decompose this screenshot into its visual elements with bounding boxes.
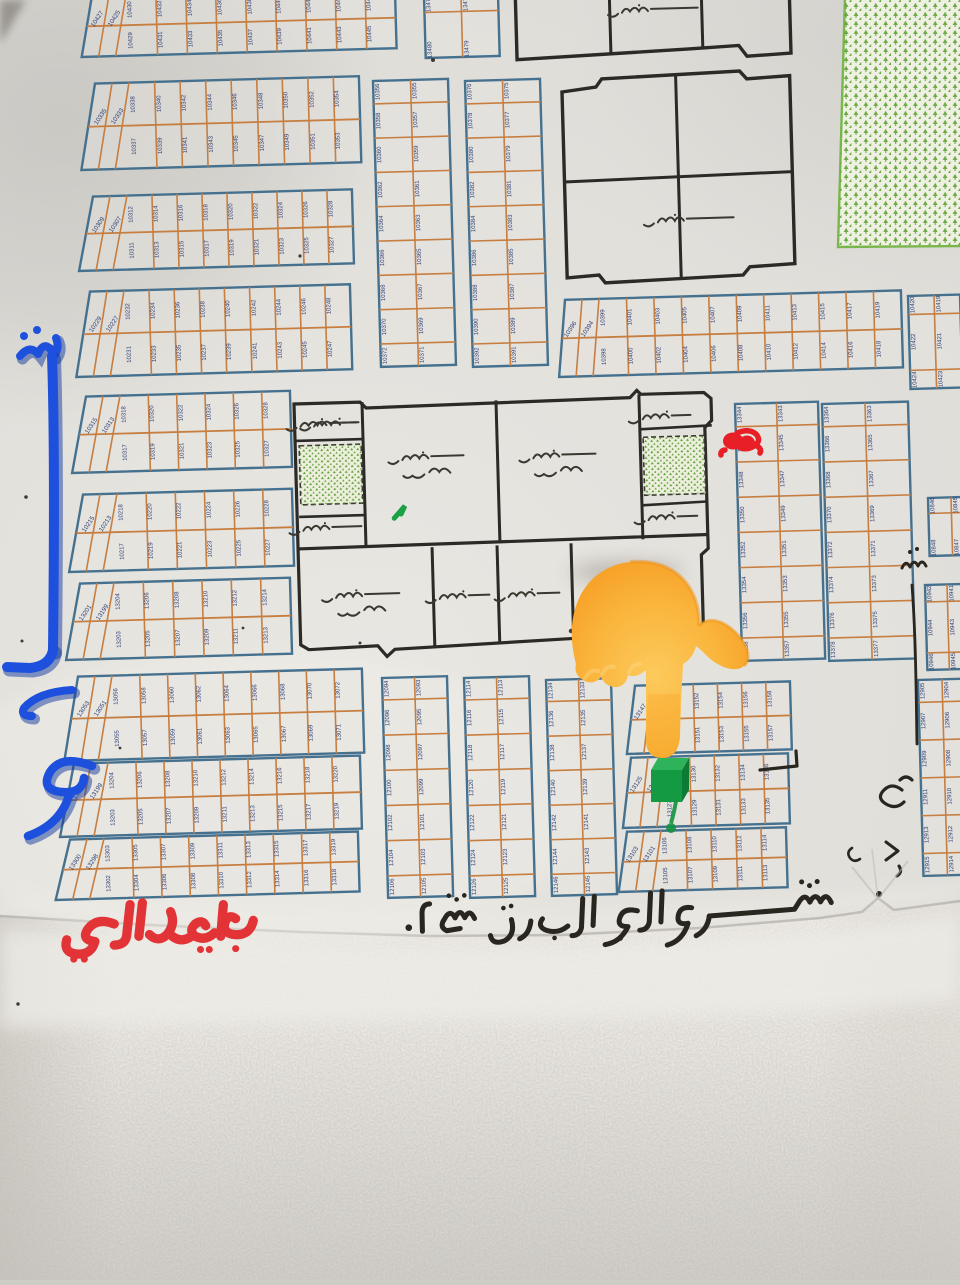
svg-text:10225: 10225 bbox=[236, 539, 242, 557]
svg-text:13208: 13208 bbox=[165, 770, 171, 788]
svg-text:12121: 12121 bbox=[502, 813, 508, 831]
svg-text:13371: 13371 bbox=[871, 540, 877, 558]
svg-text:12122: 12122 bbox=[470, 814, 476, 832]
svg-text:10344: 10344 bbox=[207, 93, 213, 111]
svg-text:10313: 10313 bbox=[154, 241, 160, 259]
svg-text:13345: 13345 bbox=[779, 434, 785, 452]
svg-text:10402: 10402 bbox=[656, 346, 662, 364]
svg-text:10422: 10422 bbox=[911, 333, 917, 351]
svg-text:12125: 12125 bbox=[504, 877, 510, 895]
svg-text:10322: 10322 bbox=[253, 202, 259, 220]
svg-text:10338: 10338 bbox=[130, 95, 136, 113]
svg-text:12097: 12097 bbox=[418, 743, 424, 761]
svg-text:10246: 10246 bbox=[301, 297, 307, 315]
svg-text:13211: 13211 bbox=[233, 627, 239, 644]
svg-text:13133: 13133 bbox=[741, 797, 747, 815]
svg-text:10360: 10360 bbox=[377, 146, 383, 164]
svg-text:10389: 10389 bbox=[511, 317, 517, 335]
svg-text:12095: 12095 bbox=[417, 708, 423, 726]
svg-text:13055: 13055 bbox=[114, 729, 120, 747]
svg-text:13368: 13368 bbox=[826, 471, 832, 489]
svg-text:10358: 10358 bbox=[376, 112, 382, 130]
svg-text:13106: 13106 bbox=[662, 837, 668, 855]
svg-text:13312: 13312 bbox=[247, 870, 253, 888]
svg-text:13206: 13206 bbox=[137, 771, 143, 789]
svg-text:10222: 10222 bbox=[176, 502, 182, 520]
svg-text:13151: 13151 bbox=[695, 726, 701, 744]
svg-text:10372: 10372 bbox=[382, 347, 388, 365]
svg-text:13204: 13204 bbox=[109, 771, 115, 789]
svg-text:13319: 13319 bbox=[331, 838, 337, 856]
svg-text:10327: 10327 bbox=[329, 236, 335, 254]
svg-text:10241: 10241 bbox=[252, 342, 258, 360]
svg-text:13479: 13479 bbox=[464, 40, 470, 58]
svg-text:12914: 12914 bbox=[949, 855, 955, 873]
svg-text:10847: 10847 bbox=[954, 538, 960, 556]
svg-text:10348: 10348 bbox=[258, 92, 264, 110]
svg-text:13057: 13057 bbox=[142, 729, 148, 747]
svg-text:13305: 13305 bbox=[133, 844, 139, 862]
svg-text:10371: 10371 bbox=[419, 346, 425, 364]
svg-text:10365: 10365 bbox=[417, 248, 423, 266]
svg-text:12913: 12913 bbox=[924, 826, 930, 844]
svg-text:12103: 12103 bbox=[421, 848, 427, 866]
svg-text:10445: 10445 bbox=[367, 25, 373, 43]
svg-text:13352: 13352 bbox=[741, 541, 747, 559]
svg-text:10411: 10411 bbox=[765, 304, 771, 321]
svg-text:10319: 10319 bbox=[150, 443, 156, 461]
svg-text:12912: 12912 bbox=[948, 825, 954, 843]
svg-text:13207: 13207 bbox=[166, 807, 172, 825]
svg-text:10375: 10375 bbox=[504, 82, 510, 100]
svg-text:13134: 13134 bbox=[740, 764, 746, 782]
svg-text:10848: 10848 bbox=[931, 539, 937, 557]
svg-text:10435: 10435 bbox=[218, 29, 224, 47]
svg-text:10944: 10944 bbox=[928, 619, 934, 637]
svg-text:13377: 13377 bbox=[874, 639, 880, 657]
svg-text:13108: 13108 bbox=[687, 836, 693, 854]
svg-text:13158: 13158 bbox=[767, 690, 773, 708]
svg-text:10237: 10237 bbox=[201, 343, 207, 361]
svg-text:12096: 12096 bbox=[385, 709, 391, 727]
svg-text:10391: 10391 bbox=[511, 346, 517, 364]
svg-text:10319: 10319 bbox=[229, 239, 235, 257]
svg-text:10231: 10231 bbox=[127, 345, 133, 363]
svg-text:13304: 13304 bbox=[134, 874, 140, 892]
svg-text:10223: 10223 bbox=[207, 540, 213, 558]
svg-text:10846: 10846 bbox=[930, 497, 936, 515]
svg-text:12123: 12123 bbox=[503, 848, 509, 866]
svg-text:13214: 13214 bbox=[262, 588, 268, 606]
svg-text:13220: 13220 bbox=[333, 765, 339, 783]
svg-text:13205: 13205 bbox=[145, 630, 151, 648]
svg-text:10418: 10418 bbox=[876, 340, 882, 358]
svg-text:10383: 10383 bbox=[508, 214, 514, 232]
svg-text:13302: 13302 bbox=[106, 874, 112, 892]
svg-text:10322: 10322 bbox=[178, 404, 184, 422]
svg-text:10412: 10412 bbox=[793, 342, 799, 360]
svg-text:10323: 10323 bbox=[207, 441, 213, 459]
svg-text:12106: 12106 bbox=[390, 878, 396, 896]
svg-text:12908: 12908 bbox=[946, 749, 952, 767]
svg-text:10219: 10219 bbox=[148, 542, 154, 560]
svg-text:13373: 13373 bbox=[872, 575, 878, 593]
svg-text:12136: 12136 bbox=[549, 710, 555, 728]
svg-text:13309: 13309 bbox=[190, 842, 196, 860]
svg-text:12141: 12141 bbox=[584, 813, 590, 831]
svg-text:13156: 13156 bbox=[743, 691, 749, 709]
svg-text:10405: 10405 bbox=[682, 306, 688, 324]
svg-text:13367: 13367 bbox=[869, 470, 875, 488]
svg-text:10384: 10384 bbox=[471, 215, 477, 233]
svg-text:10401: 10401 bbox=[627, 308, 633, 326]
svg-text:10943: 10943 bbox=[950, 618, 956, 636]
svg-text:13153: 13153 bbox=[719, 725, 725, 743]
svg-text:13355: 13355 bbox=[784, 611, 790, 629]
svg-text:13061: 13061 bbox=[197, 727, 203, 745]
svg-text:10316: 10316 bbox=[178, 204, 184, 222]
svg-text:10417: 10417 bbox=[847, 302, 853, 320]
svg-text:13348: 13348 bbox=[739, 471, 745, 489]
svg-text:13213: 13213 bbox=[250, 804, 256, 822]
svg-text:10945: 10945 bbox=[951, 652, 957, 670]
svg-text:13353: 13353 bbox=[783, 575, 789, 593]
svg-text:10218: 10218 bbox=[118, 503, 124, 521]
svg-text:13310: 13310 bbox=[219, 871, 225, 889]
svg-text:12140: 12140 bbox=[551, 779, 557, 797]
svg-text:13111: 13111 bbox=[738, 865, 744, 882]
svg-text:10413: 10413 bbox=[792, 303, 798, 321]
svg-text:13351: 13351 bbox=[782, 540, 788, 558]
svg-text:10235: 10235 bbox=[176, 344, 182, 362]
svg-text:12910: 12910 bbox=[947, 787, 953, 805]
svg-text:12101: 12101 bbox=[420, 813, 426, 831]
svg-text:10238: 10238 bbox=[200, 300, 206, 318]
svg-text:10221: 10221 bbox=[177, 541, 183, 559]
svg-text:10345: 10345 bbox=[233, 135, 239, 153]
svg-text:12907: 12907 bbox=[921, 712, 927, 730]
svg-text:10323: 10323 bbox=[279, 237, 285, 255]
svg-text:10350: 10350 bbox=[283, 91, 289, 109]
svg-text:12094: 12094 bbox=[384, 680, 390, 698]
svg-text:13105: 13105 bbox=[663, 867, 669, 885]
svg-text:10942: 10942 bbox=[927, 585, 933, 603]
svg-text:10368: 10368 bbox=[381, 284, 387, 302]
svg-text:13363: 13363 bbox=[867, 405, 873, 423]
svg-text:10419: 10419 bbox=[936, 295, 942, 313]
svg-text:13063: 13063 bbox=[225, 726, 231, 744]
svg-text:10423: 10423 bbox=[938, 370, 944, 388]
svg-text:12114: 12114 bbox=[466, 680, 472, 697]
svg-text:13217: 13217 bbox=[306, 803, 312, 821]
svg-text:10242: 10242 bbox=[251, 299, 257, 317]
svg-text:10341: 10341 bbox=[182, 136, 188, 154]
svg-text:13154: 13154 bbox=[718, 691, 724, 709]
svg-text:10321: 10321 bbox=[254, 238, 260, 256]
svg-text:13129: 13129 bbox=[692, 799, 698, 817]
svg-text:10446: 10446 bbox=[366, 0, 372, 11]
svg-text:10337: 10337 bbox=[132, 137, 138, 155]
svg-text:12906: 12906 bbox=[945, 711, 951, 729]
svg-text:10379: 10379 bbox=[506, 145, 512, 163]
svg-text:13307: 13307 bbox=[161, 843, 167, 861]
svg-text:13155: 13155 bbox=[744, 725, 750, 743]
svg-text:12117: 12117 bbox=[500, 743, 506, 760]
svg-text:10232: 10232 bbox=[125, 302, 131, 320]
svg-text:13372: 13372 bbox=[828, 541, 834, 559]
svg-text:10441: 10441 bbox=[307, 27, 313, 45]
svg-text:10431: 10431 bbox=[158, 31, 164, 49]
svg-text:10424: 10424 bbox=[912, 371, 918, 389]
svg-text:10352: 10352 bbox=[309, 90, 315, 108]
svg-text:13071: 13071 bbox=[336, 723, 342, 741]
svg-text:10415: 10415 bbox=[820, 302, 826, 320]
svg-text:13318: 13318 bbox=[332, 868, 338, 886]
svg-text:10444: 10444 bbox=[336, 0, 342, 12]
svg-text:13369: 13369 bbox=[870, 505, 876, 523]
svg-text:13059: 13059 bbox=[170, 728, 176, 746]
svg-text:12105: 12105 bbox=[422, 877, 428, 895]
svg-text:13058: 13058 bbox=[141, 687, 147, 705]
svg-text:13064: 13064 bbox=[224, 684, 230, 702]
svg-text:10370: 10370 bbox=[382, 318, 388, 336]
svg-text:10320: 10320 bbox=[149, 405, 155, 423]
svg-text:10326: 10326 bbox=[303, 201, 309, 219]
svg-text:12909: 12909 bbox=[922, 750, 928, 768]
svg-text:13308: 13308 bbox=[191, 872, 197, 890]
svg-text:10220: 10220 bbox=[147, 503, 153, 521]
svg-text:13113: 13113 bbox=[763, 864, 769, 881]
svg-text:10410: 10410 bbox=[766, 343, 772, 361]
svg-text:10437: 10437 bbox=[248, 28, 254, 46]
svg-text:13152: 13152 bbox=[694, 692, 700, 710]
svg-text:12146: 12146 bbox=[553, 876, 559, 894]
svg-text:10315: 10315 bbox=[179, 240, 185, 258]
svg-text:13364: 13364 bbox=[824, 406, 830, 424]
svg-text:10366: 10366 bbox=[380, 249, 386, 267]
svg-text:10439: 10439 bbox=[277, 27, 283, 45]
svg-text:13132: 13132 bbox=[715, 764, 721, 782]
svg-text:10390: 10390 bbox=[474, 318, 480, 336]
svg-text:13354: 13354 bbox=[742, 576, 748, 594]
svg-text:12904: 12904 bbox=[944, 681, 950, 699]
svg-text:10311: 10311 bbox=[129, 242, 135, 259]
svg-text:13208: 13208 bbox=[174, 591, 180, 609]
svg-text:12104: 12104 bbox=[389, 849, 395, 867]
svg-text:12142: 12142 bbox=[552, 814, 558, 832]
svg-text:10312: 10312 bbox=[128, 205, 134, 223]
svg-text:13056: 13056 bbox=[113, 687, 119, 705]
svg-text:10321: 10321 bbox=[179, 442, 185, 460]
svg-text:10359: 10359 bbox=[414, 145, 420, 163]
svg-text:13356: 13356 bbox=[743, 612, 749, 630]
svg-text:13218: 13218 bbox=[305, 766, 311, 784]
svg-text:13072: 13072 bbox=[335, 681, 341, 699]
svg-text:10382: 10382 bbox=[470, 181, 476, 199]
svg-text:13112: 13112 bbox=[737, 835, 743, 852]
svg-text:10224: 10224 bbox=[206, 501, 212, 519]
svg-text:10403: 10403 bbox=[655, 307, 661, 325]
svg-text:13315: 13315 bbox=[274, 840, 280, 858]
svg-text:13213: 13213 bbox=[263, 626, 269, 644]
svg-text:12119: 12119 bbox=[501, 778, 507, 795]
svg-text:12098: 12098 bbox=[386, 744, 392, 762]
svg-text:12093: 12093 bbox=[416, 679, 422, 697]
svg-text:13311: 13311 bbox=[218, 841, 224, 858]
svg-text:10377: 10377 bbox=[505, 111, 511, 129]
svg-text:12139: 12139 bbox=[583, 778, 589, 796]
svg-text:10367: 10367 bbox=[418, 283, 424, 301]
svg-text:10227: 10227 bbox=[265, 538, 271, 556]
svg-text:10357: 10357 bbox=[413, 111, 419, 129]
svg-text:13210: 13210 bbox=[193, 769, 199, 787]
svg-text:10320: 10320 bbox=[228, 203, 234, 221]
svg-text:13375: 13375 bbox=[873, 610, 879, 628]
svg-text:10386: 10386 bbox=[472, 249, 478, 267]
svg-text:12133: 12133 bbox=[580, 681, 586, 699]
svg-text:10226: 10226 bbox=[235, 500, 241, 518]
svg-text:10248: 10248 bbox=[326, 297, 332, 315]
svg-text:10420: 10420 bbox=[910, 296, 916, 314]
svg-text:13210: 13210 bbox=[203, 590, 209, 608]
svg-text:10343: 10343 bbox=[208, 135, 214, 153]
svg-text:10342: 10342 bbox=[181, 94, 187, 112]
svg-text:13314: 13314 bbox=[275, 870, 281, 888]
svg-text:12911: 12911 bbox=[923, 788, 929, 805]
svg-text:10217: 10217 bbox=[119, 542, 125, 560]
svg-text:10407: 10407 bbox=[710, 306, 716, 324]
svg-text:10234: 10234 bbox=[150, 302, 156, 320]
svg-text:10414: 10414 bbox=[821, 341, 827, 359]
svg-text:13207: 13207 bbox=[175, 629, 181, 647]
svg-text:10378: 10378 bbox=[468, 112, 474, 130]
svg-text:13060: 13060 bbox=[169, 686, 175, 704]
svg-text:13066: 13066 bbox=[252, 684, 258, 702]
svg-text:12137: 12137 bbox=[582, 743, 588, 761]
svg-text:10438: 10438 bbox=[247, 0, 253, 15]
svg-text:13216: 13216 bbox=[277, 767, 283, 785]
svg-text:12120: 12120 bbox=[469, 779, 475, 797]
svg-text:10326: 10326 bbox=[234, 402, 240, 420]
svg-text:12113: 12113 bbox=[498, 679, 504, 696]
svg-text:13478: 13478 bbox=[426, 0, 432, 12]
svg-text:13347: 13347 bbox=[780, 470, 786, 488]
svg-text:13343: 13343 bbox=[778, 405, 784, 423]
svg-text:13211: 13211 bbox=[222, 805, 228, 822]
svg-text:10354: 10354 bbox=[334, 90, 340, 108]
svg-text:13477: 13477 bbox=[463, 0, 469, 11]
svg-text:10398: 10398 bbox=[601, 348, 607, 366]
svg-text:13370: 13370 bbox=[827, 506, 833, 524]
svg-text:10239: 10239 bbox=[226, 343, 232, 361]
svg-text:10416: 10416 bbox=[848, 341, 854, 359]
svg-text:10327: 10327 bbox=[264, 439, 270, 457]
svg-text:13068: 13068 bbox=[280, 683, 286, 701]
svg-text:10364: 10364 bbox=[379, 215, 385, 233]
svg-text:10346: 10346 bbox=[232, 93, 238, 111]
svg-text:13209: 13209 bbox=[194, 806, 200, 824]
svg-text:13316: 13316 bbox=[304, 869, 310, 887]
svg-text:12118: 12118 bbox=[468, 744, 474, 761]
svg-text:12915: 12915 bbox=[925, 856, 931, 874]
svg-text:10387: 10387 bbox=[510, 283, 516, 301]
svg-text:10247: 10247 bbox=[327, 340, 333, 358]
svg-text:10419: 10419 bbox=[875, 301, 881, 319]
svg-text:13107: 13107 bbox=[688, 866, 694, 884]
svg-text:12100: 12100 bbox=[387, 779, 393, 797]
svg-text:10404: 10404 bbox=[683, 345, 689, 363]
svg-text:10340: 10340 bbox=[156, 95, 162, 113]
svg-text:12099: 12099 bbox=[419, 778, 425, 796]
svg-text:10376: 10376 bbox=[467, 83, 473, 101]
svg-text:10355: 10355 bbox=[412, 82, 418, 100]
svg-text:13203: 13203 bbox=[116, 630, 122, 648]
svg-text:10443: 10443 bbox=[337, 26, 343, 44]
svg-text:10406: 10406 bbox=[711, 345, 717, 363]
svg-text:10845: 10845 bbox=[953, 496, 959, 514]
svg-text:10245: 10245 bbox=[302, 340, 308, 358]
svg-text:10362: 10362 bbox=[378, 181, 384, 199]
svg-text:10388: 10388 bbox=[473, 284, 479, 302]
svg-text:10351: 10351 bbox=[310, 132, 316, 150]
svg-text:10442: 10442 bbox=[306, 0, 312, 13]
svg-text:10946: 10946 bbox=[929, 653, 935, 671]
svg-text:10349: 10349 bbox=[284, 133, 290, 151]
svg-text:10409: 10409 bbox=[737, 305, 743, 323]
svg-text:10421: 10421 bbox=[937, 332, 943, 350]
svg-text:13376: 13376 bbox=[830, 612, 836, 630]
svg-text:13303: 13303 bbox=[105, 844, 111, 862]
svg-text:13349: 13349 bbox=[781, 505, 787, 523]
svg-text:13313: 13313 bbox=[246, 840, 252, 858]
svg-text:13344: 13344 bbox=[737, 406, 743, 424]
svg-text:13374: 13374 bbox=[829, 576, 835, 594]
svg-text:10429: 10429 bbox=[128, 32, 134, 50]
svg-text:13219: 13219 bbox=[334, 802, 340, 820]
svg-text:10433: 10433 bbox=[188, 30, 194, 48]
svg-text:10399: 10399 bbox=[600, 309, 606, 327]
svg-text:10317: 10317 bbox=[204, 239, 210, 257]
svg-text:10385: 10385 bbox=[509, 248, 515, 266]
svg-text:13378: 13378 bbox=[831, 641, 837, 659]
svg-text:10236: 10236 bbox=[175, 301, 181, 319]
svg-text:10324: 10324 bbox=[206, 403, 212, 421]
svg-text:13110: 13110 bbox=[712, 835, 718, 852]
svg-text:13109: 13109 bbox=[713, 865, 719, 883]
svg-text:10434: 10434 bbox=[187, 0, 193, 16]
svg-text:13209: 13209 bbox=[204, 628, 210, 646]
svg-text:10430: 10430 bbox=[127, 1, 133, 19]
svg-text:13062: 13062 bbox=[196, 685, 202, 703]
svg-text:10353: 10353 bbox=[335, 132, 341, 150]
svg-text:12143: 12143 bbox=[585, 847, 591, 865]
svg-text:12134: 12134 bbox=[548, 682, 554, 700]
svg-text:13357: 13357 bbox=[785, 640, 791, 658]
svg-text:10240: 10240 bbox=[225, 300, 231, 318]
svg-text:12124: 12124 bbox=[471, 849, 477, 867]
svg-text:12135: 12135 bbox=[581, 709, 587, 727]
svg-text:10363: 10363 bbox=[416, 214, 422, 232]
svg-text:12116: 12116 bbox=[467, 709, 473, 726]
svg-text:10356: 10356 bbox=[375, 83, 381, 101]
svg-text:13157: 13157 bbox=[768, 724, 774, 742]
svg-text:10436: 10436 bbox=[217, 0, 223, 16]
svg-text:10318: 10318 bbox=[121, 405, 127, 423]
svg-text:13214: 13214 bbox=[249, 767, 255, 785]
svg-text:12905: 12905 bbox=[920, 682, 926, 700]
svg-text:10328: 10328 bbox=[263, 401, 269, 419]
svg-text:13136: 13136 bbox=[764, 763, 770, 781]
